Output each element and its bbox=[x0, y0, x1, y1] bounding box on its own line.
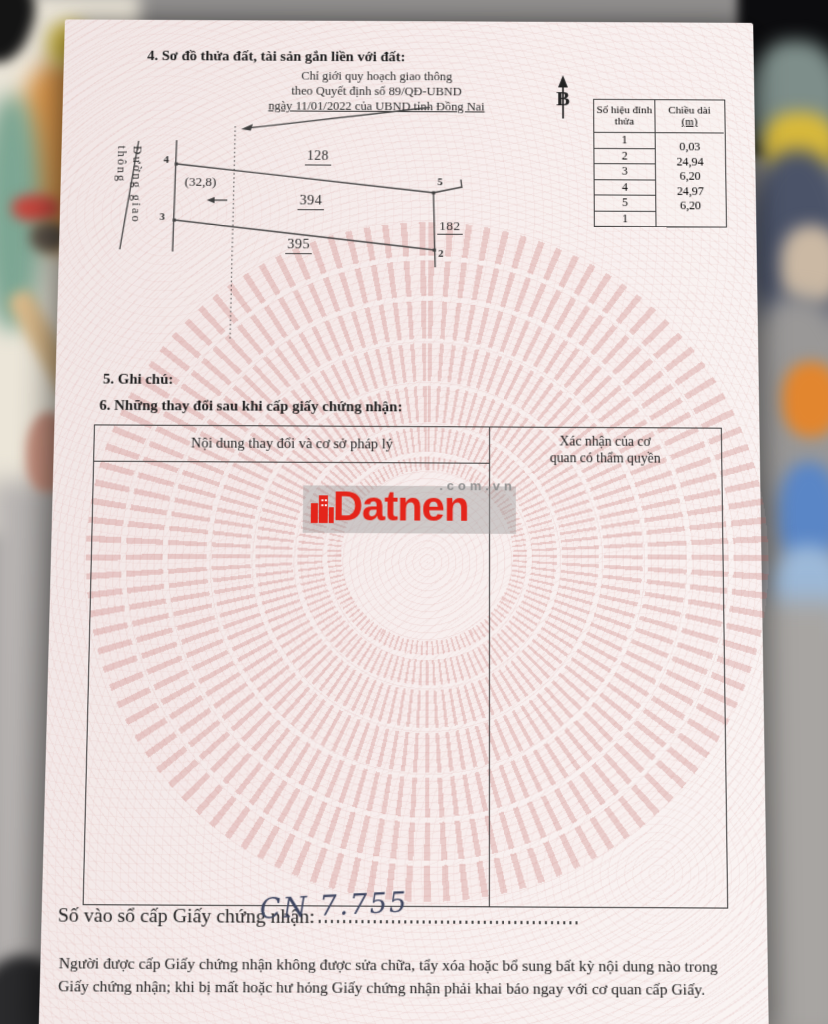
length-values: 0,03 24,94 6,20 24,97 6,20 bbox=[656, 133, 725, 214]
planning-note-line1: Chỉ giới quy hoạch giao thông bbox=[238, 68, 516, 84]
length-cell: 6,20 bbox=[656, 169, 724, 184]
vertex-length-table: Số hiệu đỉnh thửa 1 2 3 4 5 1 Chiều dài … bbox=[593, 99, 727, 228]
vertex-cell: 3 bbox=[594, 164, 655, 180]
offset-label: (32,8) bbox=[184, 174, 216, 189]
vertex-cell: 2 bbox=[594, 148, 655, 164]
footer-line2: Giấy chứng nhận; khi bị mất hoặc hư hỏng… bbox=[58, 978, 764, 1001]
length-cell: 6,20 bbox=[656, 199, 725, 214]
planning-note-line3: ngày 11/01/2022 của UBND tỉnh Đồng Nai bbox=[237, 98, 515, 114]
length-cell: 24,94 bbox=[656, 154, 724, 169]
beige-object-blob bbox=[780, 225, 828, 305]
footer-line1: Người được cấp Giấy chứng nhận không đượ… bbox=[58, 955, 763, 978]
section4-title: 4. Sơ đồ thửa đất, tài sản gắn liền với … bbox=[147, 49, 405, 66]
vertex-cell: 5 bbox=[595, 195, 656, 211]
point-label-2: 2 bbox=[438, 248, 443, 260]
registry-line: Số vào sổ cấp Giấy chứng nhận: CN 7.755 bbox=[58, 905, 582, 931]
certificate-page: 4. Sơ đồ thửa đất, tài sản gắn liền với … bbox=[39, 19, 769, 1024]
vertex-column-header: Số hiệu đỉnh thửa bbox=[594, 100, 655, 133]
vertex-column: Số hiệu đỉnh thửa 1 2 3 4 5 1 bbox=[594, 100, 656, 226]
road-label: Đường giao thông bbox=[112, 146, 146, 249]
section5-title: 5. Ghi chú: bbox=[103, 372, 174, 389]
changes-col1-header: Nội dung thay đổi và cơ sở pháp lý bbox=[94, 425, 489, 463]
point-label-3: 3 bbox=[159, 211, 165, 222]
building-icon bbox=[309, 491, 335, 525]
orange-object-blob bbox=[782, 362, 828, 437]
watermark-brand: Datnen bbox=[333, 484, 469, 530]
length-cell: 24,97 bbox=[656, 184, 725, 199]
point-label-5: 5 bbox=[437, 177, 442, 188]
planning-note-line2: theo Quyết định số 89/QĐ-UBND bbox=[238, 83, 516, 99]
datnen-watermark: .com.vn Datnen bbox=[303, 478, 522, 536]
length-column: Chiều dài (m) 0,03 24,94 6,20 24,97 6,20 bbox=[655, 100, 725, 226]
vertex-cell: 1 bbox=[594, 133, 654, 149]
red-text-blob bbox=[12, 195, 60, 221]
planning-note: Chỉ giới quy hoạch giao thông theo Quyết… bbox=[237, 68, 515, 115]
edge-label-182: 182 bbox=[437, 218, 462, 234]
vertex-cell: 4 bbox=[595, 180, 656, 196]
section6-title: 6. Những thay đổi sau khi cấp giấy chứng… bbox=[99, 398, 402, 416]
footer-note: Người được cấp Giấy chứng nhận không đượ… bbox=[58, 955, 764, 1000]
length-cell: 0,03 bbox=[656, 140, 724, 155]
north-arrow-icon: B bbox=[550, 74, 575, 121]
edge-label-128: 128 bbox=[305, 149, 331, 165]
vertex-cell: 1 bbox=[595, 211, 656, 226]
edge-label-394: 394 bbox=[298, 193, 325, 210]
edge-label-395: 395 bbox=[285, 237, 312, 254]
length-column-header: Chiều dài (m) bbox=[655, 100, 723, 133]
point-label-4: 4 bbox=[163, 154, 169, 165]
photo-scene: 4. Sơ đồ thửa đất, tài sản gắn liền với … bbox=[0, 0, 828, 1024]
changes-col2-header: Xác nhận của cơ quan có thẩm quyền bbox=[489, 432, 721, 467]
